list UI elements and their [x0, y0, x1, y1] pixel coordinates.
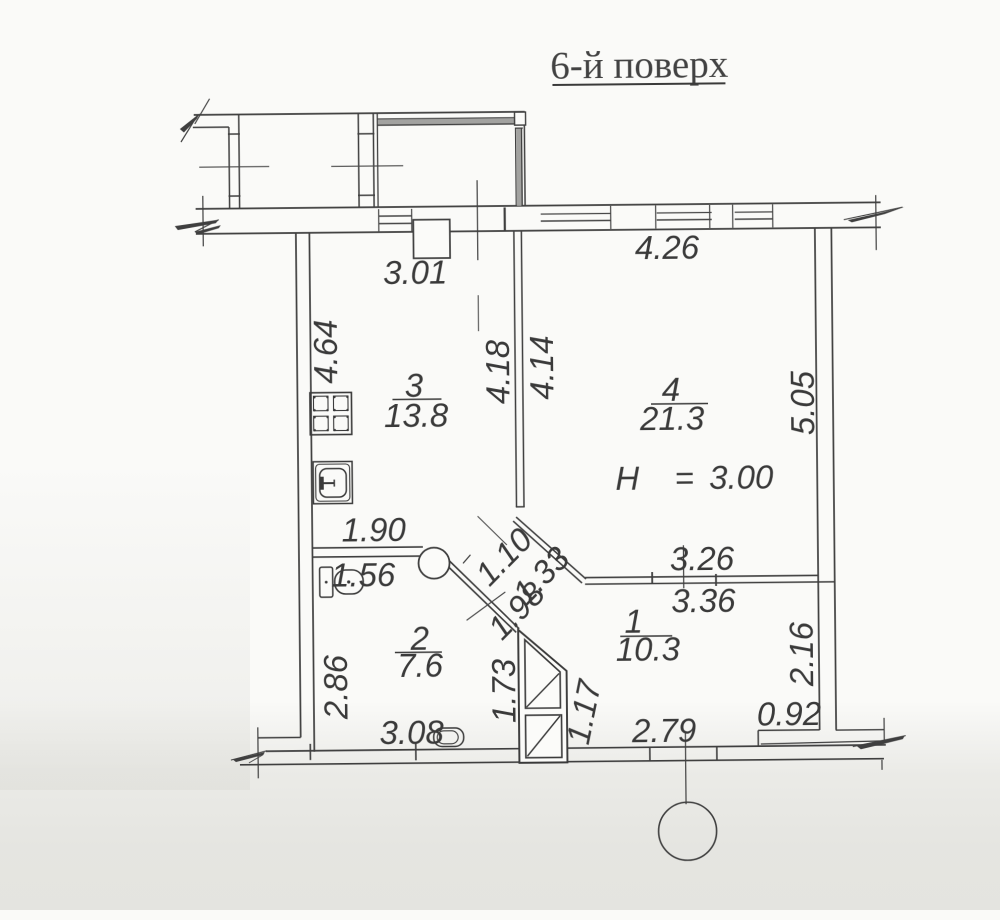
svg-text:4.18: 4.18 — [479, 339, 517, 404]
svg-text:10.3: 10.3 — [616, 630, 681, 668]
svg-text:1.56: 1.56 — [331, 556, 396, 594]
svg-text:4.64: 4.64 — [307, 319, 345, 384]
svg-text:21.3: 21.3 — [639, 400, 705, 438]
svg-text:7.6: 7.6 — [397, 647, 444, 684]
svg-text:4.26: 4.26 — [635, 229, 700, 267]
svg-text:3.08: 3.08 — [379, 714, 444, 752]
svg-text:2.79: 2.79 — [631, 712, 697, 750]
svg-text:=: = — [674, 459, 694, 496]
svg-text:H: H — [615, 460, 639, 497]
svg-text:0.92: 0.92 — [757, 695, 822, 733]
svg-text:1.90: 1.90 — [341, 511, 406, 549]
svg-text:3.36: 3.36 — [671, 582, 736, 620]
svg-text:1.73: 1.73 — [485, 658, 523, 723]
svg-text:6-й поверх: 6-й поверх — [550, 43, 729, 88]
svg-text:3.26: 3.26 — [670, 540, 735, 578]
svg-text:5.05: 5.05 — [784, 370, 822, 435]
svg-text:4.14: 4.14 — [523, 335, 561, 400]
svg-text:2.86: 2.86 — [317, 654, 355, 720]
svg-text:13.8: 13.8 — [384, 396, 449, 434]
svg-text:3.01: 3.01 — [383, 253, 448, 291]
svg-text:3.00: 3.00 — [709, 458, 774, 496]
svg-text:2.16: 2.16 — [783, 621, 821, 687]
